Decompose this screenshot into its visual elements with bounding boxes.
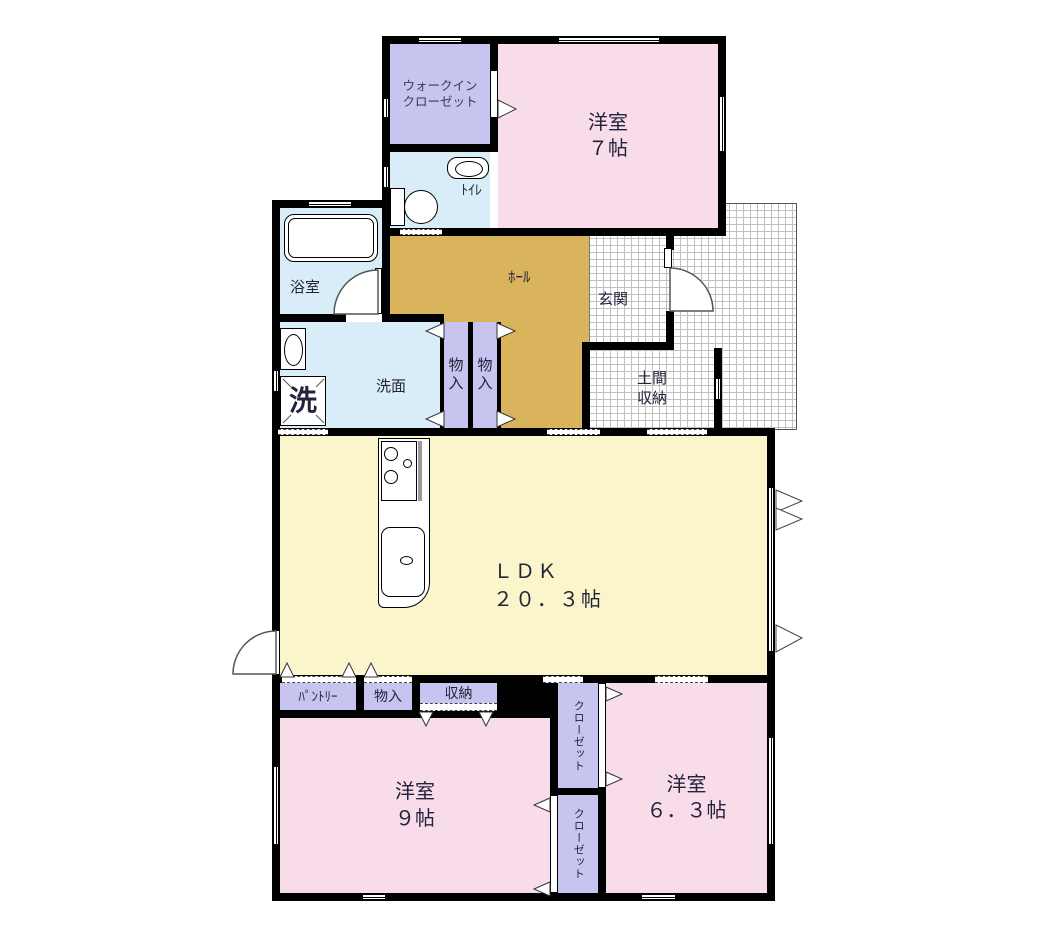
wall <box>440 322 444 428</box>
storage-b-label: 物 入 <box>477 357 492 393</box>
pantry-label: ﾊﾟﾝﾄﾘｰ <box>299 688 338 705</box>
hall-label: ﾎｰﾙ <box>508 268 531 288</box>
stove-burner-2 <box>384 470 398 484</box>
wall <box>468 322 473 428</box>
toilet-label: ﾄｲﾚ <box>461 181 482 199</box>
room-storage-c: 物入 <box>364 683 412 710</box>
toilet-hand-basin <box>447 157 489 179</box>
door-opening <box>278 429 328 435</box>
wall <box>598 788 606 901</box>
window <box>362 894 386 900</box>
room-storage-b: 物 入 <box>473 322 497 428</box>
ldk-label: ＬＤＫ ２０．３帖 <box>493 558 603 614</box>
room-closet-lower: クローゼット <box>558 795 598 893</box>
room-storage-d: 収納 <box>420 683 497 703</box>
room-bedroom63: 洋室 ６．３帖 <box>606 683 767 893</box>
door-leaf <box>598 683 606 788</box>
entrance-label: 玄関 <box>598 290 628 310</box>
toilet-bowl <box>404 190 438 224</box>
room-closet-upper: クローゼット <box>558 683 598 788</box>
toilet-hand-basin-bowl <box>455 161 483 177</box>
door-opening <box>543 676 583 683</box>
room-pantry: ﾊﾟﾝﾄﾘｰ <box>280 683 356 710</box>
window <box>768 487 774 652</box>
entrance-step-line <box>589 236 590 342</box>
porch-edge-top <box>726 203 797 204</box>
door-opening <box>364 676 412 683</box>
door-leaf <box>272 630 280 675</box>
wall <box>272 893 775 901</box>
wall <box>412 683 420 710</box>
washroom-basin-bowl <box>284 334 303 366</box>
door-leaf <box>664 248 672 268</box>
wall <box>356 683 364 710</box>
room-entrance: 玄関 <box>590 236 666 342</box>
door-opening <box>655 676 708 683</box>
washing-machine-pan: 洗 <box>280 376 326 426</box>
door-opening <box>647 429 707 435</box>
door-leaf <box>490 70 498 118</box>
bedroom63-label: 洋室 ６．３帖 <box>647 772 727 825</box>
ldk-window-casement-arrow <box>776 508 802 530</box>
floor-plan: ウォークイン クローゼット ﾄｲﾚ 洋室 ７帖 浴室 ﾎｰﾙ 洗面 物 入 物 … <box>0 0 1040 944</box>
window <box>273 766 279 845</box>
wall <box>272 710 550 718</box>
window <box>383 98 389 118</box>
window <box>768 737 774 845</box>
window <box>719 96 725 152</box>
wall <box>382 314 444 322</box>
window <box>273 370 279 392</box>
door-opening <box>420 703 497 711</box>
washroom-basin <box>280 328 306 370</box>
room-bedroom9: 洋室 ９帖 <box>280 718 550 893</box>
stove-burner-1 <box>384 447 398 461</box>
doma-storage-label: 土間 収納 <box>637 369 667 409</box>
wall <box>272 314 346 322</box>
ldk-window-casement-arrow <box>776 490 802 512</box>
window <box>558 37 660 43</box>
window <box>715 378 721 400</box>
room-ldk: ＬＤＫ ２０．３帖 <box>280 436 767 675</box>
counter-edge-strip <box>418 441 422 501</box>
room-doma-storage: 土間 収納 <box>590 350 714 428</box>
wall <box>497 322 501 428</box>
wall <box>582 342 674 350</box>
door-leaf <box>550 795 558 893</box>
porch-edge-bottom <box>775 429 797 430</box>
wall <box>550 675 558 795</box>
window <box>308 201 352 207</box>
wall <box>382 144 498 152</box>
door-opening <box>282 676 356 683</box>
closet-upper-label: クローゼット <box>571 700 586 772</box>
washroom-label: 洗面 <box>376 377 406 397</box>
window <box>383 166 389 188</box>
stove-knob <box>403 459 412 468</box>
bath-label: 浴室 <box>290 278 320 298</box>
bathtub <box>284 214 378 262</box>
storage-c-label: 物入 <box>374 687 402 705</box>
wall <box>582 342 590 428</box>
bedroom9-label: 洋室 ９帖 <box>395 779 435 832</box>
room-bedroom7: 洋室 ７帖 <box>498 44 718 228</box>
washer-label: 洗 <box>289 383 317 420</box>
ldk-door-swing <box>233 631 276 674</box>
ldk-window-casement-arrow <box>776 625 802 652</box>
window <box>418 37 462 43</box>
walk-in-closet-label: ウォークイン クローゼット <box>402 78 477 111</box>
sink-faucet <box>400 556 413 565</box>
room-walk-in-closet: ウォークイン クローゼット <box>390 44 490 144</box>
closet-lower-label: クローゼット <box>571 808 586 880</box>
toilet-tank <box>390 188 405 226</box>
bedroom7-label: 洋室 ７帖 <box>588 110 628 163</box>
porch-edge-right <box>796 203 797 430</box>
bathtub-inner <box>288 218 374 258</box>
window <box>641 894 676 900</box>
storage-d-label: 収納 <box>445 684 473 702</box>
storage-a-label: 物 入 <box>448 357 463 393</box>
door-leaf <box>375 268 382 314</box>
room-storage-a: 物 入 <box>444 322 468 428</box>
door-opening <box>400 229 442 235</box>
door-opening <box>547 429 600 435</box>
